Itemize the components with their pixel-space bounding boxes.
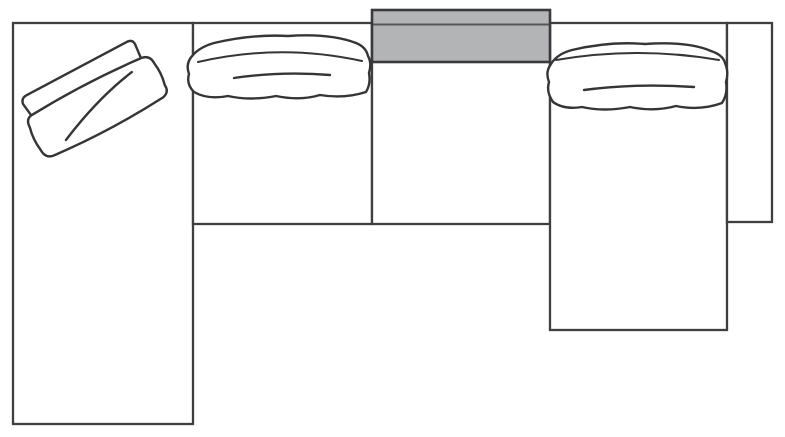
sofa-plan-canvas: [0, 0, 785, 437]
cushion-body: [188, 35, 371, 98]
right-chaise-cushion: [547, 43, 727, 109]
armless-seat-cushion: [188, 35, 371, 98]
sofa-floor-plan: [0, 0, 785, 437]
right-armrest: [727, 23, 772, 222]
console-table: [372, 10, 550, 62]
